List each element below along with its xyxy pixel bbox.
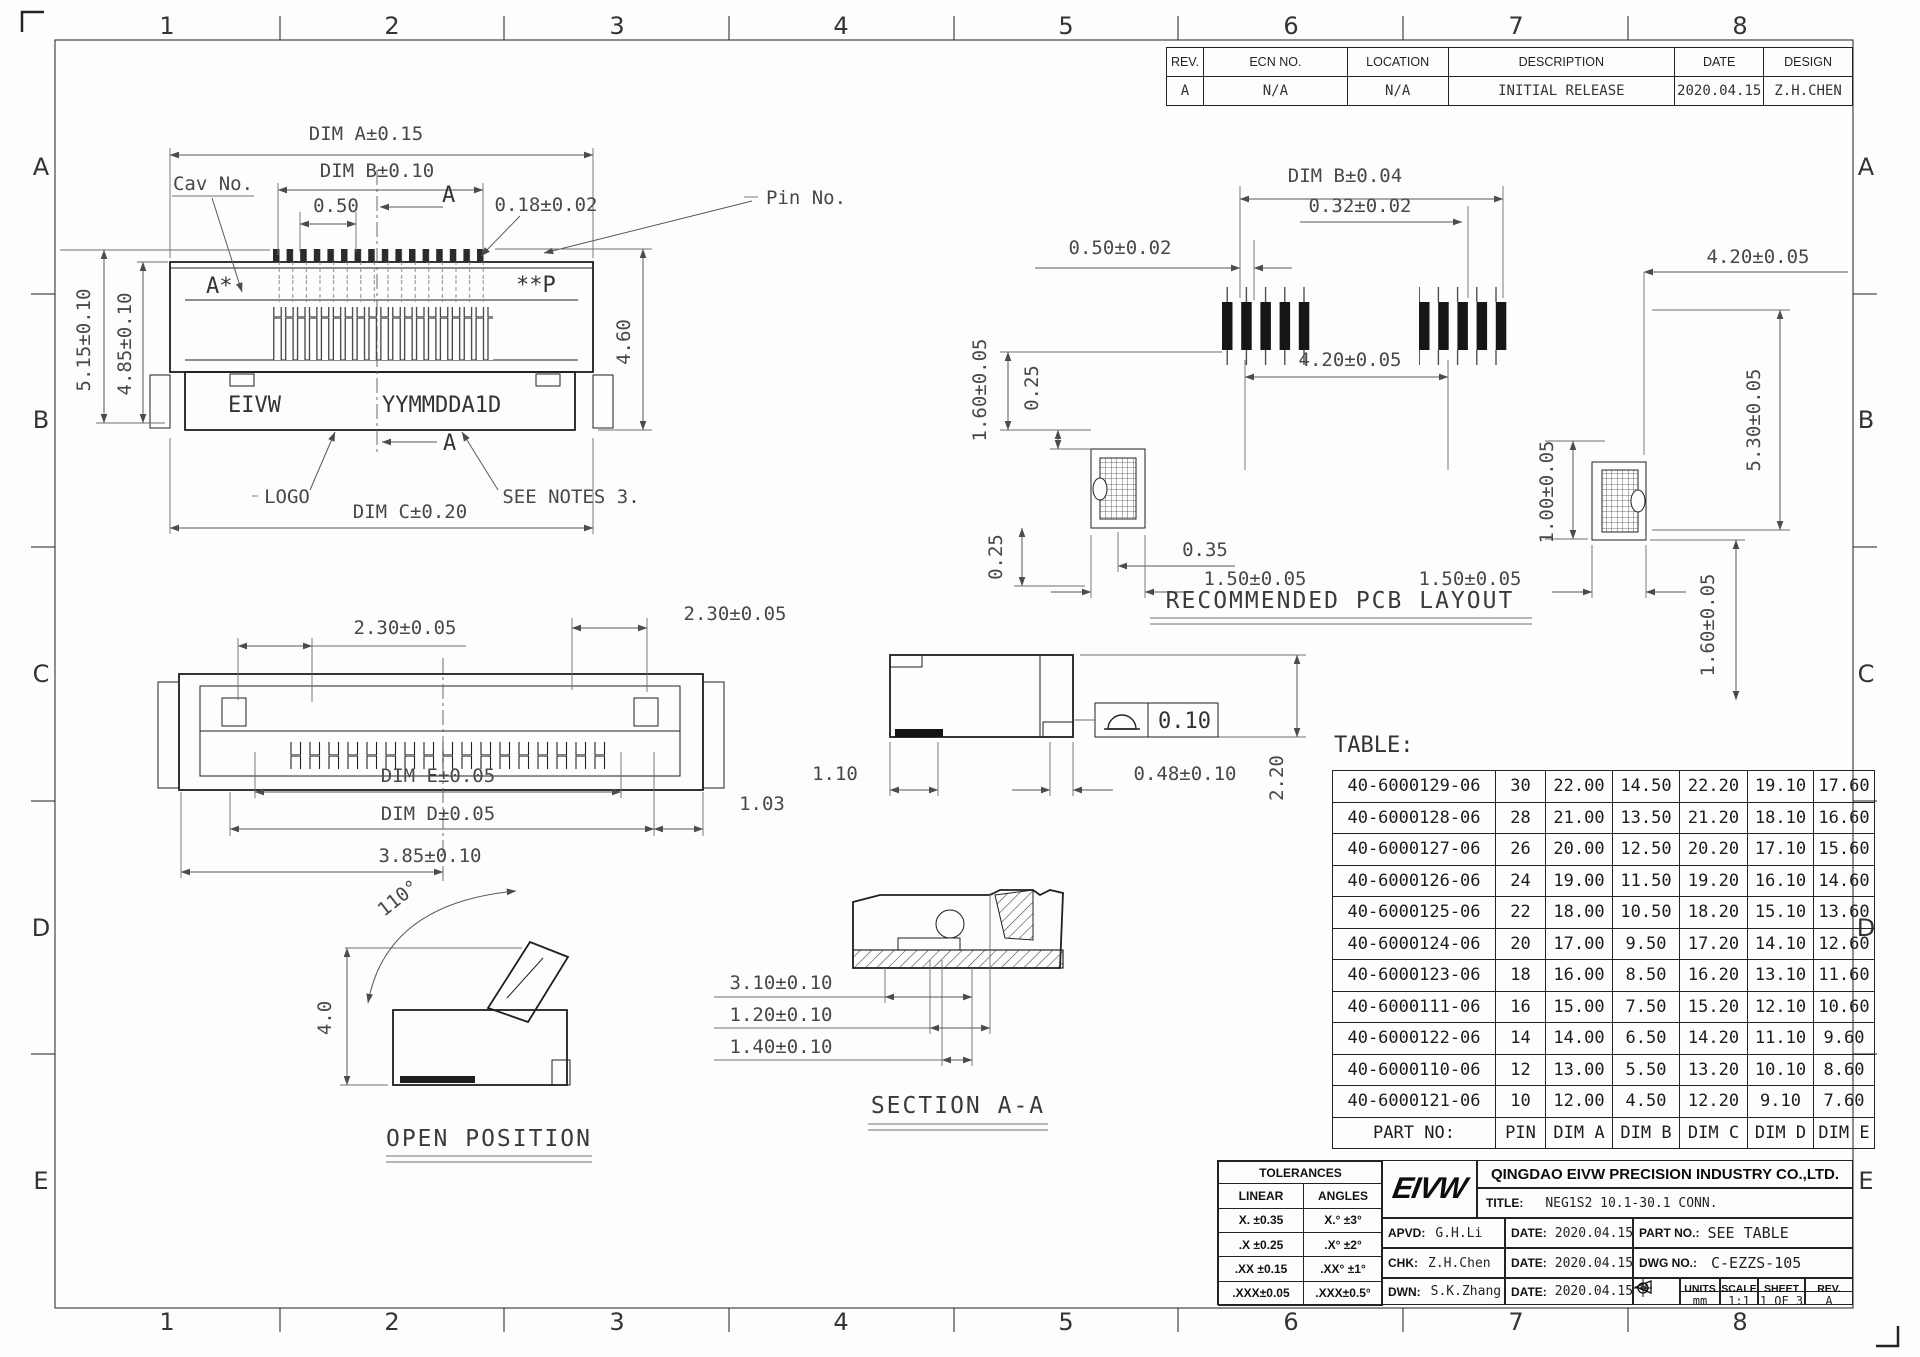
tail-left-label: 2.30±0.05 (354, 617, 457, 639)
side-view: 1.10 0.48±0.10 2.20 0.10 (812, 655, 1306, 801)
front-view: DIM A±0.15 DIM B±0.10 0.50 A 0.18±0.02 C… (60, 123, 846, 534)
anchor-pad-right (1592, 462, 1646, 540)
part-no-label: PART NO.: (1639, 1226, 1699, 1240)
location-header: LOCATION (1347, 48, 1448, 77)
pin-leads (276, 262, 490, 302)
title-label: TITLE: (1486, 1196, 1523, 1210)
dim-b-label: DIM B±0.10 (320, 160, 434, 182)
zone-letter: C (1858, 660, 1875, 688)
zone-number: 5 (1058, 12, 1073, 40)
dwn-label: DWN: (1388, 1285, 1421, 1299)
ecn-header: ECN NO. (1203, 48, 1347, 77)
zone-number: 7 (1508, 1308, 1523, 1336)
date-label-3: DATE: (1511, 1285, 1547, 1299)
sheet-cell: SHEET 1 OF 3 (1758, 1278, 1805, 1305)
contact-teeth (273, 307, 493, 360)
overall-label: 3.85±0.10 (379, 845, 482, 867)
dim-a-label: DIM A±0.15 (309, 123, 423, 145)
revision-row: A N/A N/A INITIAL RELEASE 2020.04.15 Z.H… (1167, 77, 1853, 106)
height-outer-label: 5.15±0.10 (73, 289, 95, 392)
apvd-name: G.H.Li (1435, 1226, 1482, 1241)
height-inner-label: 4.85±0.10 (114, 293, 136, 396)
zone-number: 3 (609, 12, 624, 40)
flatness-symbol-icon (1104, 715, 1140, 729)
rev-cell: REV. A (1805, 1278, 1853, 1305)
zone-letter: C (33, 660, 50, 688)
pcb-layout-view: DIM B±0.04 0.50±0.02 0.32±0.02 4.20±0.05… (969, 165, 1848, 700)
zone-number: 6 (1283, 1308, 1298, 1336)
zone-number: 3 (609, 1308, 624, 1336)
zone-number: 6 (1283, 12, 1298, 40)
design-value: Z.H.CHEN (1764, 77, 1853, 106)
part-no-value: SEE TABLE (1707, 1224, 1788, 1242)
ecn-value: N/A (1203, 77, 1347, 106)
table-row: 40-6000110-061213.005.5013.2010.108.60 (1333, 1054, 1875, 1086)
scale-value: 1:1 (1728, 1294, 1750, 1308)
notes-callout: SEE NOTES 3. (502, 486, 639, 508)
zone-letter: A (1858, 153, 1875, 181)
angle-label: 110° (374, 876, 424, 922)
zone-letter: D (32, 914, 50, 942)
open-caption: OPEN POSITION (386, 1126, 592, 1152)
anchor-left-label: 1.50±0.05 (1204, 568, 1307, 590)
units-value: mm (1693, 1294, 1707, 1308)
depth-label: 4.60 (613, 319, 635, 365)
dim-d-label: DIM D±0.05 (381, 803, 495, 825)
logo-callout: LOGO (264, 486, 310, 508)
gap-bottom-label: 0.25 (985, 534, 1007, 580)
scale-cell: SCALE 1:1 (1720, 1278, 1758, 1305)
bottom-view: 2.30±0.05 2.30±0.05 DIM E±0.05 DIM D±0.0… (158, 603, 786, 882)
gap-top-label: 0.25 (1021, 365, 1043, 411)
part-table-label: TABLE: (1334, 733, 1413, 758)
apvd-label: APVD: (1388, 1226, 1425, 1240)
linear-header: LINEAR (1219, 1184, 1304, 1208)
company-logo: EIVW (1382, 1160, 1477, 1218)
tail-label: 0.48±0.10 (1134, 763, 1237, 785)
span-right-label: 4.20±0.05 (1707, 246, 1810, 268)
anchor-pad-left (1091, 449, 1145, 528)
brand-text: EIVW (228, 393, 282, 418)
dwg-no-value: C-EZZS-105 (1711, 1254, 1801, 1272)
pcb-caption: RECOMMENDED PCB LAYOUT (1166, 588, 1515, 614)
chk-label: CHK: (1388, 1256, 1418, 1270)
revision-table: REV. ECN NO. LOCATION DESCRIPTION DATE D… (1166, 47, 1853, 106)
date-value: 2020.04.15 (1675, 77, 1764, 106)
projection-symbol (1633, 1278, 1680, 1305)
date-label-2: DATE: (1511, 1256, 1547, 1270)
section-d2-label: 1.20±0.10 (730, 1004, 833, 1026)
table-row: 40-6000126-062419.0011.5019.2016.1014.60 (1333, 865, 1875, 897)
polarity-mark-p: **P (516, 273, 556, 298)
pin-row (273, 249, 490, 262)
dwn-name: S.K.Zhang (1431, 1284, 1501, 1299)
drawing-canvas: 1 2 3 4 5 6 7 8 1 2 3 4 5 6 7 8 A B C D … (0, 0, 1920, 1357)
zone-number: 2 (384, 1308, 399, 1336)
date-header: DATE (1675, 48, 1764, 77)
tolerances-title: TOLERANCES (1219, 1162, 1383, 1184)
foot-label: 1.10 (812, 763, 858, 785)
zone-number: 8 (1732, 12, 1747, 40)
table-row: 40-6000127-062620.0012.5020.2017.1015.60 (1333, 834, 1875, 866)
rev-value: A (1825, 1294, 1832, 1308)
pitch-label: 0.50 (313, 195, 359, 217)
section-view: 3.10±0.10 1.20±0.10 1.40±0.10 SECTION A-… (714, 890, 1063, 1130)
zone-number: 5 (1058, 1308, 1073, 1336)
zone-letter: A (33, 153, 50, 181)
zone-letter: E (1858, 1167, 1873, 1195)
part-table: 40-6000129-063022.0014.5022.2019.1017.60… (1332, 770, 1875, 1149)
date-code-text: YYMMDDA1D (382, 393, 501, 418)
zone-number: 4 (833, 12, 848, 40)
anchor-right-label: 1.50±0.05 (1419, 568, 1522, 590)
section-mark-bottom: A (443, 431, 456, 456)
pin-no-label: Pin No. (766, 187, 846, 209)
pad-width-label: 0.32±0.02 (1309, 195, 1412, 217)
section-mark-top: A (442, 183, 455, 208)
pad-pitch-label: 0.50±0.02 (1069, 237, 1172, 259)
section-caption: SECTION A-A (871, 1093, 1045, 1119)
notch-label: 0.35 (1182, 539, 1228, 561)
title-block: TOLERANCES LINEARANGLES X. ±0.35X.° ±3° … (1217, 1160, 1853, 1305)
zone-number: 2 (384, 12, 399, 40)
offset-label: 1.03 (739, 793, 785, 815)
section-d3-label: 1.40±0.10 (730, 1036, 833, 1058)
chk-date: 2020.04.15 (1555, 1256, 1633, 1271)
edge-top-label: 1.60±0.05 (969, 339, 991, 442)
table-row: 40-6000129-063022.0014.5022.2019.1017.60 (1333, 771, 1875, 803)
zone-number: 1 (159, 12, 174, 40)
zone-letter: E (33, 1167, 48, 1195)
design-header: DESIGN (1764, 48, 1853, 77)
offset-v-label: 1.00±0.05 (1536, 441, 1558, 544)
zone-letter: B (1858, 406, 1874, 434)
drawing-sheet: 1 2 3 4 5 6 7 8 1 2 3 4 5 6 7 8 A B C D … (0, 0, 1920, 1357)
zone-number: 7 (1508, 12, 1523, 40)
drawing-title: NEG1S2 10.1-30.1 CONN. (1545, 1196, 1717, 1211)
flatness-value: 0.10 (1158, 709, 1211, 734)
zone-number: 8 (1732, 1308, 1747, 1336)
polarity-mark-a: A* (206, 274, 233, 299)
logo-text: EIVW (1390, 1172, 1469, 1206)
section-d1-label: 3.10±0.10 (730, 972, 833, 994)
rev-value: A (1167, 77, 1204, 106)
pcb-dim-b-label: DIM B±0.04 (1288, 165, 1402, 187)
table-row: 40-6000111-061615.007.5015.2012.1010.60 (1333, 991, 1875, 1023)
table-row: 40-6000128-062821.0013.5021.2018.1016.60 (1333, 802, 1875, 834)
tolerances-table: TOLERANCES LINEARANGLES X. ±0.35X.° ±3° … (1217, 1160, 1382, 1305)
sheet-value: 1 OF 3 (1760, 1294, 1803, 1308)
span-center-label: 4.20±0.05 (1299, 349, 1402, 371)
angles-header: ANGLES (1304, 1184, 1383, 1208)
zone-number: 1 (159, 1308, 174, 1336)
projection-cone-icon (1634, 1279, 1654, 1295)
open-height-label: 4.0 (314, 1001, 336, 1035)
dim-e-label: DIM E±0.05 (381, 765, 495, 787)
location-value: N/A (1347, 77, 1448, 106)
chk-name: Z.H.Chen (1428, 1256, 1491, 1271)
units-cell: UNITS mm (1680, 1278, 1720, 1305)
table-row: 40-6000123-061816.008.5016.2013.1011.60 (1333, 960, 1875, 992)
dwg-no-label: DWG NO.: (1639, 1256, 1697, 1270)
zone-letter: B (33, 406, 49, 434)
rev-header: REV. (1167, 48, 1204, 77)
dwn-date: 2020.04.15 (1555, 1284, 1633, 1299)
date-label-1: DATE: (1511, 1226, 1547, 1240)
table-row: 40-6000122-061414.006.5014.2011.109.60 (1333, 1023, 1875, 1055)
height-label: 2.20 (1266, 755, 1288, 801)
company-name: QINGDAO EIVW PRECISION INDUSTRY CO.,LTD. (1491, 1166, 1839, 1183)
dim-c-label: DIM C±0.20 (353, 501, 467, 523)
table-row: 40-6000124-062017.009.5017.2014.1012.60 (1333, 928, 1875, 960)
tail-right-label: 2.30±0.05 (684, 603, 787, 625)
cav-no-label: Cav No. (173, 173, 253, 195)
pin-width-label: 0.18±0.02 (495, 194, 598, 216)
open-position-view: 110° 4.0 OPEN POSITION (314, 876, 592, 1162)
edge-bottom-label: 1.60±0.05 (1697, 574, 1719, 677)
height-v-label: 5.30±0.05 (1743, 369, 1765, 472)
table-row: 40-6000125-062218.0010.5018.2015.1013.60 (1333, 897, 1875, 929)
flatness-frame: 0.10 (1073, 703, 1218, 737)
apvd-date: 2020.04.15 (1555, 1226, 1633, 1241)
description-header: DESCRIPTION (1448, 48, 1675, 77)
description-value: INITIAL RELEASE (1448, 77, 1675, 106)
zone-number: 4 (833, 1308, 848, 1336)
table-row: 40-6000121-061012.004.5012.209.107.60 (1333, 1086, 1875, 1118)
table-header-row: PART NO:PINDIM ADIM BDIM CDIM DDIM E (1333, 1117, 1875, 1149)
